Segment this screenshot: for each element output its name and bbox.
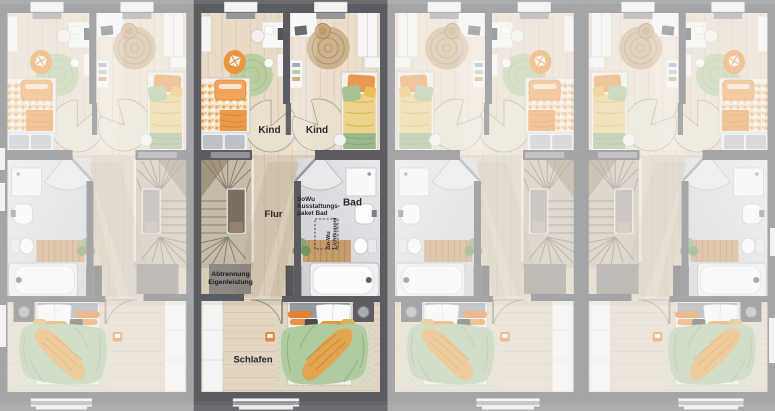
svg-text:Lichtkuppel: Lichtkuppel — [333, 217, 339, 249]
svg-text:Kind: Kind — [258, 125, 280, 136]
svg-text:Abtrennung: Abtrennung — [211, 271, 250, 278]
svg-text:Schlafen: Schlafen — [234, 354, 273, 365]
svg-text:Eigenleistung: Eigenleistung — [208, 279, 253, 286]
svg-text:Kind: Kind — [306, 125, 328, 136]
svg-text:So-Wu: So-Wu — [326, 231, 332, 249]
svg-text:Ausstattungs-: Ausstattungs- — [297, 203, 340, 210]
svg-text:paket Bad: paket Bad — [297, 210, 328, 217]
svg-text:Bad: Bad — [343, 198, 362, 209]
svg-text:SoWu: SoWu — [297, 196, 315, 203]
svg-text:Flur: Flur — [265, 209, 283, 220]
